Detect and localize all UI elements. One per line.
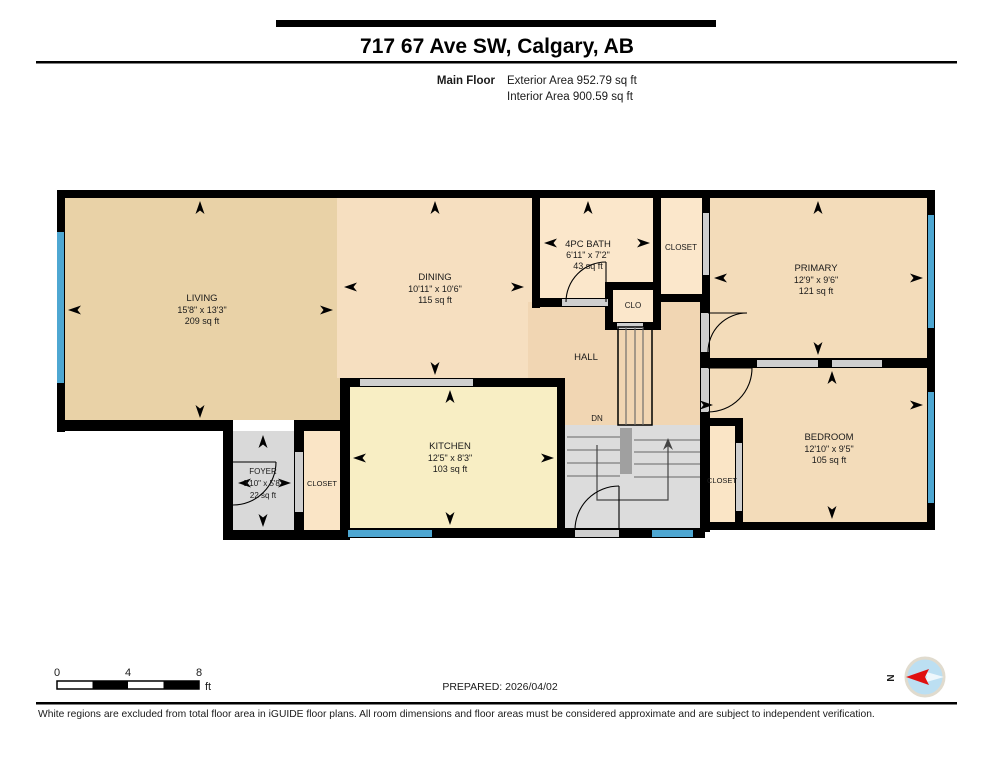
top-closet-label: CLOSET <box>665 243 697 252</box>
primary-window <box>928 215 934 328</box>
living-area: 209 sq ft <box>185 316 220 326</box>
dn-label: DN <box>591 414 603 423</box>
primary-label: PRIMARY <box>794 263 838 274</box>
header-top-rule <box>276 20 716 27</box>
entry-window <box>652 530 693 537</box>
kitchen-dims: 12'5" x 8'3" <box>428 453 472 463</box>
footer-rule <box>36 702 957 705</box>
foyer-label: FOYER <box>249 467 277 476</box>
scale-4: 4 <box>125 667 131 679</box>
floor-label: Main Floor <box>437 75 496 87</box>
floor-plan-page: 717 67 Ave SW, Calgary, AB Main Floor Ex… <box>0 0 993 768</box>
interior-area: Interior Area 900.59 sq ft <box>507 91 634 103</box>
bedroom-closet-label: CLOSET <box>707 476 737 485</box>
living-label: LIVING <box>186 293 217 304</box>
living-window <box>57 232 64 383</box>
title-underline <box>36 61 957 64</box>
kitchen-label: KITCHEN <box>429 441 471 452</box>
compass-north-label: N <box>886 674 897 681</box>
foyer-area: 22 sq ft <box>250 491 277 500</box>
living-dims: 15'8" x 13'3" <box>177 305 226 315</box>
disclaimer-text: White regions are excluded from total fl… <box>38 709 875 720</box>
stair-stringer <box>620 428 632 474</box>
bath-dims: 6'11" x 7'2" <box>566 250 610 260</box>
dining-area: 115 sq ft <box>418 295 452 305</box>
scale-0: 0 <box>54 667 60 679</box>
bedroom-area: 105 sq ft <box>812 455 847 465</box>
page-title: 717 67 Ave SW, Calgary, AB <box>360 35 634 58</box>
primary-dims: 12'9" x 9'6" <box>794 275 838 285</box>
scale-8: 8 <box>196 667 202 679</box>
bath-area: 43 sq ft <box>573 261 603 271</box>
footer: 0 4 8 ft PREPARED: 2026/04/02 N White re… <box>36 658 957 720</box>
kitchen-area: 103 sq ft <box>433 464 468 474</box>
clo-label: CLO <box>625 301 641 310</box>
hall-label: HALL <box>574 352 598 363</box>
bedroom-label: BEDROOM <box>804 432 853 443</box>
stairwell-area <box>565 425 700 532</box>
bedroom-window <box>928 392 934 503</box>
compass: N <box>886 658 944 696</box>
primary-area: 121 sq ft <box>799 286 834 296</box>
prepared-date: PREPARED: 2026/04/02 <box>442 681 558 693</box>
kitchen-window <box>348 530 432 537</box>
header: 717 67 Ave SW, Calgary, AB Main Floor Ex… <box>36 20 957 103</box>
bedroom-closet <box>708 426 738 524</box>
scale-bar: 0 4 8 ft <box>54 667 211 693</box>
bath-label: 4PC BATH <box>565 239 611 250</box>
dining-dims: 10'11" x 10'6" <box>408 284 462 294</box>
foyer-closet-label: CLOSET <box>307 479 337 488</box>
exterior-area: Exterior Area 952.79 sq ft <box>507 75 638 87</box>
foyer-dims: 3'10" x 5'8" <box>243 479 283 488</box>
scale-unit: ft <box>205 681 211 693</box>
dining-label: DINING <box>418 272 451 283</box>
bedroom-dims: 12'10" x 9'5" <box>804 444 853 454</box>
